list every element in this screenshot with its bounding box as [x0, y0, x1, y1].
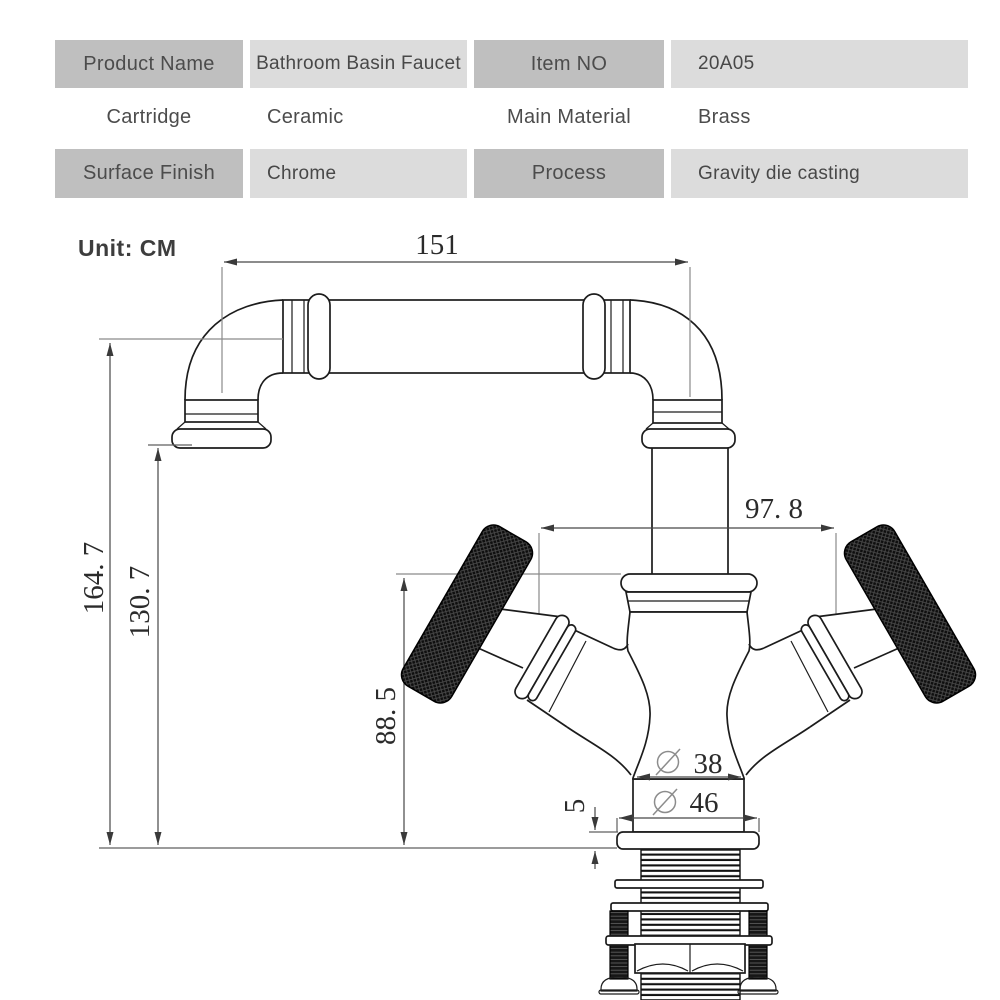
- right-elbow-outer: [630, 300, 722, 400]
- dim-label-97-8: 97. 8: [745, 493, 803, 525]
- right-handle: [746, 520, 980, 775]
- dim-spout-reach: 151: [224, 229, 688, 262]
- hex-nut: [635, 944, 745, 973]
- dim-label-5: 5: [559, 799, 591, 814]
- dim-label-46: 46: [690, 787, 719, 819]
- top-pipe: [185, 294, 722, 400]
- right-drop-fitting: [642, 400, 735, 576]
- dim-label-130-7: 130. 7: [124, 566, 156, 639]
- shank-washer-upper: [615, 880, 763, 888]
- dim-label-151: 151: [415, 229, 459, 261]
- body-column: [627, 612, 750, 779]
- base-flange: [617, 832, 759, 849]
- shank-washer-middle: [611, 903, 768, 911]
- faucet-body: [621, 574, 757, 779]
- technical-drawing: 151 164. 7 130. 7 88. 5 97. 8: [0, 0, 1000, 1000]
- dim-label-88-5: 88. 5: [370, 687, 402, 745]
- vertical-pipe: [652, 446, 728, 576]
- dim-spout-height: 130. 7: [124, 448, 158, 845]
- unit-label: Unit: CM: [78, 235, 177, 261]
- dim-overall-height: 164. 7: [78, 343, 110, 845]
- dim-label-164-7: 164. 7: [78, 542, 110, 615]
- spec-sheet-page: Product Name Bathroom Basin Faucet Item …: [0, 0, 1000, 1000]
- mounting-shank: [599, 850, 778, 1000]
- right-elbow-inner: [630, 373, 653, 400]
- dim-label-38: 38: [694, 748, 723, 780]
- mounting-stud: [599, 911, 639, 994]
- body-collar-cap: [621, 574, 757, 592]
- left-handle: [397, 520, 631, 775]
- left-elbow-outer: [185, 300, 283, 400]
- body-collar-taper: [626, 592, 751, 612]
- left-elbow-inner: [258, 373, 283, 400]
- base-cylinder: [617, 779, 759, 849]
- spout-outlet: [172, 400, 271, 448]
- dim-deck-thickness: 5: [559, 799, 595, 869]
- dim-handle-height: 88. 5: [370, 578, 404, 845]
